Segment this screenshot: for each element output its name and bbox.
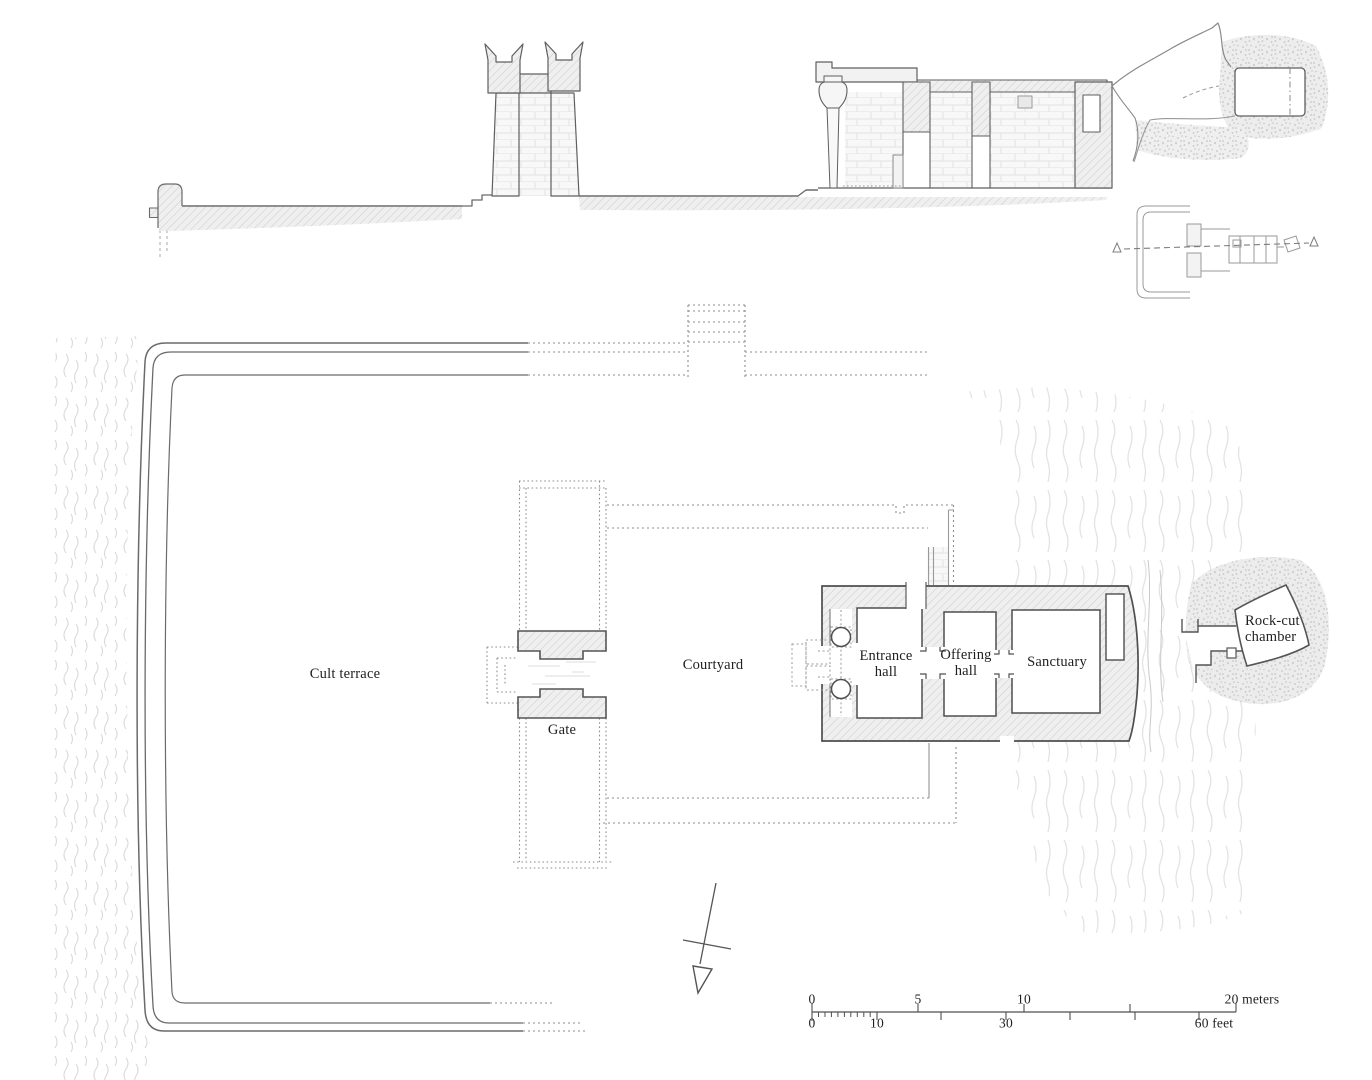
entrance-hall-label: Entrance hall (850, 649, 922, 681)
niche-room (1106, 594, 1124, 660)
rock-hill-section (1112, 23, 1328, 162)
terrace-steps (462, 195, 492, 206)
drawing (0, 0, 1372, 1080)
sanctuary-label: Sanctuary (1027, 655, 1087, 671)
rock-cut-chamber-section (1235, 68, 1305, 116)
cult-terrace-label: Cult terrace (310, 667, 380, 683)
terrace-parapet-notch (150, 208, 159, 218)
temple-section (816, 62, 1112, 188)
gate-label: Gate (548, 723, 576, 739)
gate-plan (487, 481, 612, 868)
courtyard-label: Courtyard (683, 658, 744, 674)
scale-feet-10: 10 (870, 1017, 884, 1032)
river-water-texture (50, 336, 150, 1080)
scale-meters-0: 0 (809, 993, 816, 1008)
section-line (1124, 243, 1309, 249)
gate-cornice-right (545, 42, 583, 91)
gate-foundation-dotted (487, 481, 612, 868)
section-marker-right (1310, 237, 1318, 246)
cult-terrace-outline (137, 305, 930, 1031)
scale-meters-end: 20 meters (1225, 993, 1280, 1008)
spur-wall (929, 510, 955, 585)
north-arrow (683, 883, 731, 993)
offering-hall-label: Offering hall (935, 648, 997, 680)
section-elevation-drawing (150, 23, 1329, 257)
key-plan-inset (1113, 206, 1318, 298)
scale-feet-0: 0 (809, 1017, 816, 1032)
scale-feet-end: 60 feet (1195, 1017, 1234, 1032)
scale-feet-30: 30 (999, 1017, 1013, 1032)
scale-meters-10: 10 (1017, 993, 1031, 1008)
section-marker-left (1113, 243, 1121, 252)
niche-section (1083, 95, 1100, 132)
gate-section (485, 42, 583, 196)
gate-north-block (518, 631, 606, 659)
column (832, 628, 851, 647)
rock-profile-line (1112, 23, 1231, 86)
gate-south-block (518, 689, 606, 718)
rock-cut-chamber-label: Rock-cut chamber (1245, 614, 1317, 646)
temple-plan-figure: Cult terrace Gate Courtyard Entrance hal… (0, 0, 1372, 1080)
scale-meters-5: 5 (915, 993, 922, 1008)
terrace-stairs (688, 305, 745, 377)
column-section (819, 76, 847, 188)
column (832, 680, 851, 699)
gate-cornice-left (485, 44, 523, 93)
chamber-door-jamb (1227, 648, 1236, 658)
